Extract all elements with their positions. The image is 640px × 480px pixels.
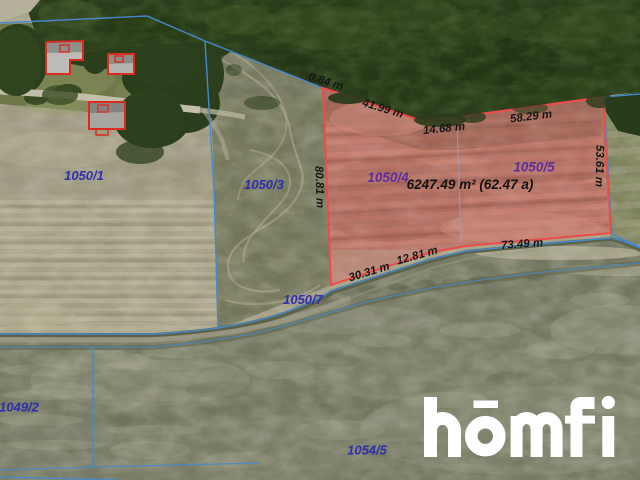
svg-text:1050/4: 1050/4 <box>367 170 409 185</box>
svg-text:6247.49 m² (62.47 a): 6247.49 m² (62.47 a) <box>407 177 534 192</box>
svg-text:1050/5: 1050/5 <box>513 160 555 175</box>
svg-text:1050/1: 1050/1 <box>64 168 104 183</box>
svg-text:1049/2: 1049/2 <box>0 400 40 415</box>
svg-text:53.61 m: 53.61 m <box>593 145 606 187</box>
svg-text:1050/7: 1050/7 <box>283 292 324 307</box>
svg-text:1054/5: 1054/5 <box>347 443 388 458</box>
svg-text:80.81 m: 80.81 m <box>312 166 325 209</box>
svg-text:1050/3: 1050/3 <box>244 177 285 192</box>
